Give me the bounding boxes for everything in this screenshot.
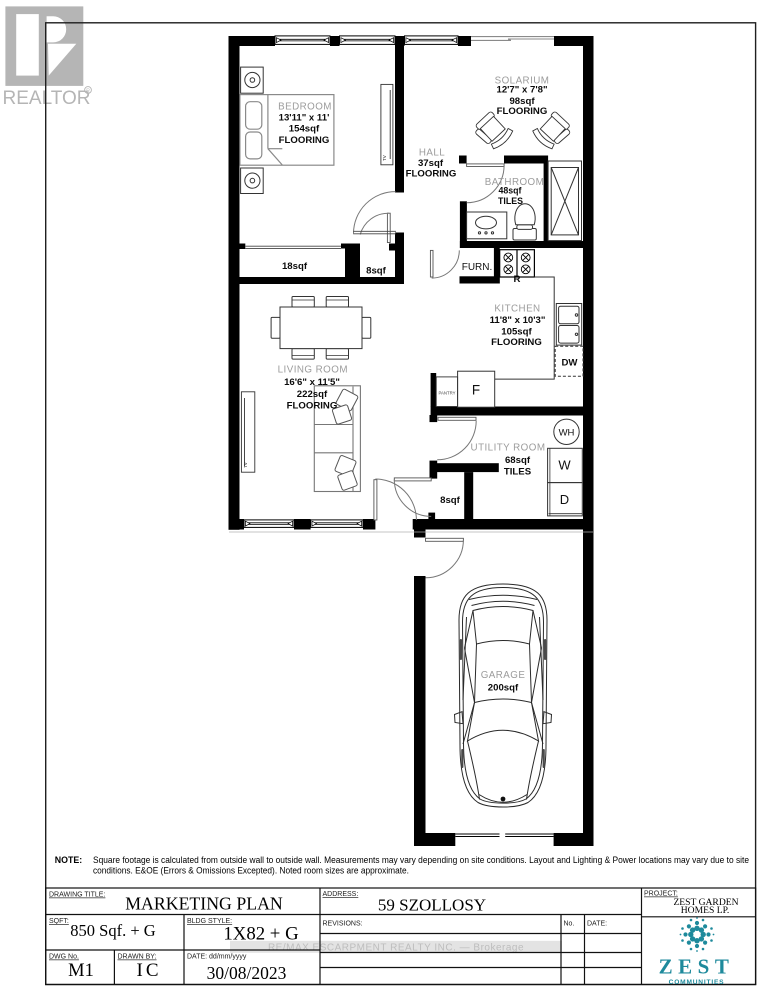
svg-text:TV: TV <box>243 462 248 468</box>
svg-text:W: W <box>558 457 571 472</box>
svg-text:R: R <box>514 274 521 285</box>
svg-text:DW: DW <box>562 357 579 368</box>
svg-text:IC: IC <box>137 960 162 981</box>
svg-text:MARKETING PLAN: MARKETING PLAN <box>125 894 283 914</box>
svg-text:16'6" x 11'5": 16'6" x 11'5" <box>284 377 340 388</box>
svg-text:conditions. E&OE (Errors & Omi: conditions. E&OE (Errors & Omissions Exc… <box>93 866 409 876</box>
svg-text:105sqf: 105sqf <box>501 327 532 338</box>
svg-text:LIVING ROOM: LIVING ROOM <box>278 364 348 375</box>
svg-text:DATE: dd/mm/yyyy: DATE: dd/mm/yyyy <box>187 954 247 961</box>
svg-text:FURN.: FURN. <box>462 262 493 273</box>
svg-text:TV: TV <box>382 155 387 161</box>
svg-text:REALTOR: REALTOR <box>3 88 91 109</box>
svg-text:GARAGE: GARAGE <box>481 670 526 681</box>
svg-text:REVISIONS:: REVISIONS: <box>323 921 363 928</box>
svg-text:48sqf: 48sqf <box>499 186 522 196</box>
svg-text:WH: WH <box>559 427 575 438</box>
svg-text:UTILITY ROOM: UTILITY ROOM <box>471 442 546 453</box>
svg-text:D: D <box>560 492 569 507</box>
svg-text:ZEST: ZEST <box>659 955 735 979</box>
svg-text:1X82 + G: 1X82 + G <box>223 924 298 945</box>
svg-text:FLOORING: FLOORING <box>279 135 330 146</box>
svg-text:FLOORING: FLOORING <box>406 168 457 179</box>
svg-text:COMMUNITIES: COMMUNITIES <box>669 979 725 986</box>
svg-text:HOMES LP.: HOMES LP. <box>681 905 730 916</box>
svg-text:DWG No.: DWG No. <box>49 954 79 961</box>
svg-text:FLOORING: FLOORING <box>287 401 338 412</box>
svg-text:KITCHEN: KITCHEN <box>494 304 540 315</box>
svg-text:DRAWING TITLE:: DRAWING TITLE: <box>49 892 105 899</box>
svg-text:200sqf: 200sqf <box>488 683 519 694</box>
svg-text:68sqf: 68sqf <box>505 455 531 466</box>
svg-text:RE/MAX ESCARPMENT REALTY INC.: RE/MAX ESCARPMENT REALTY INC. — Brokerag… <box>268 943 524 954</box>
svg-text:BEDROOM: BEDROOM <box>278 102 332 113</box>
svg-text:850 Sqf. + G: 850 Sqf. + G <box>70 921 155 940</box>
svg-text:13'11" x 11': 13'11" x 11' <box>279 112 330 123</box>
svg-text:154sqf: 154sqf <box>289 124 320 135</box>
svg-text:11'8" x 10'3": 11'8" x 10'3" <box>490 315 546 326</box>
svg-text:TILES: TILES <box>498 196 523 206</box>
svg-text:M1: M1 <box>68 961 94 981</box>
svg-text:30/08/2023: 30/08/2023 <box>207 963 287 983</box>
svg-text:HALL: HALL <box>419 148 445 159</box>
svg-text:F: F <box>472 383 480 398</box>
svg-text:SQFT:: SQFT: <box>49 918 69 925</box>
svg-text:12'7" x 7'8": 12'7" x 7'8" <box>496 85 547 96</box>
svg-text:18sqf: 18sqf <box>282 261 308 272</box>
svg-text:ADDRESS:: ADDRESS: <box>323 891 359 898</box>
svg-text:PANTRY: PANTRY <box>438 390 455 395</box>
svg-text:59 SZOLLOSY: 59 SZOLLOSY <box>378 896 486 915</box>
svg-text:Square footage is calculated f: Square footage is calculated from outsid… <box>93 855 749 865</box>
svg-text:NOTE:: NOTE: <box>55 855 82 865</box>
svg-text:222sqf: 222sqf <box>297 389 328 400</box>
svg-text:No.: No. <box>564 921 575 928</box>
svg-text:DATE:: DATE: <box>587 921 607 928</box>
svg-text:FLOORING: FLOORING <box>497 106 548 117</box>
svg-text:8sqf: 8sqf <box>440 495 461 506</box>
svg-text:FLOORING: FLOORING <box>491 337 542 348</box>
svg-text:R: R <box>86 88 90 94</box>
svg-text:8sqf: 8sqf <box>366 266 387 277</box>
svg-text:TILES: TILES <box>504 467 532 478</box>
